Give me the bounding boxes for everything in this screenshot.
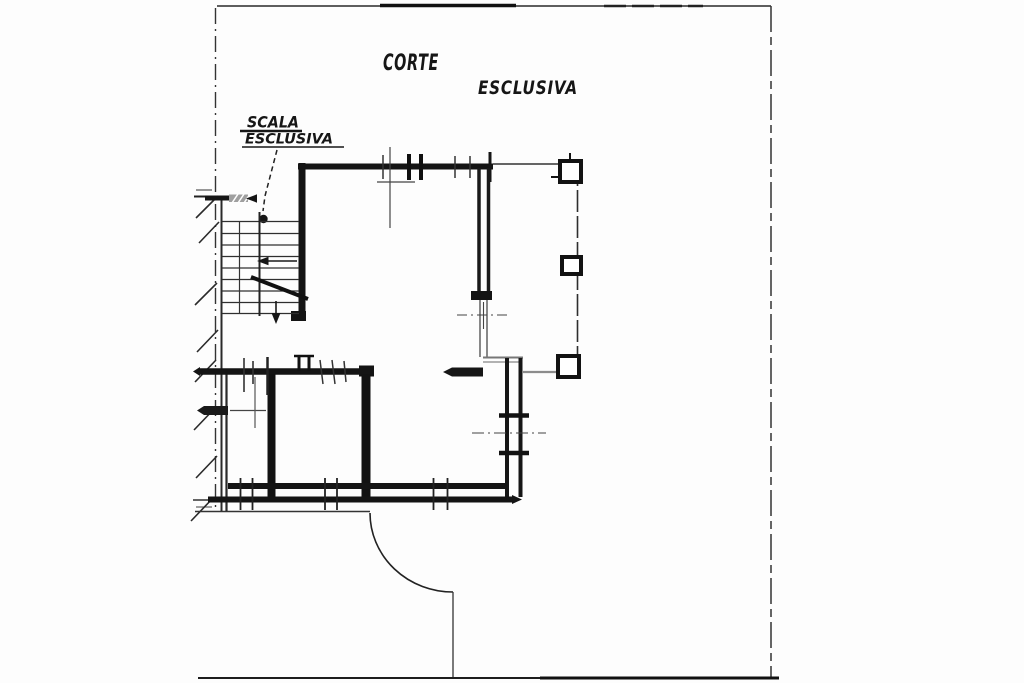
- terrace-pillar-middle: [562, 257, 581, 274]
- courtyard-boundary: [370, 513, 453, 677]
- label-corte: CORTE: [383, 51, 439, 76]
- label-scala: SCALA: [247, 113, 299, 132]
- label-scala-esclusiva: ESCLUSIVA: [245, 132, 333, 148]
- building-north-wall: [298, 147, 493, 228]
- leader-line: [259, 150, 277, 223]
- sheet-border-top: [217, 6, 771, 7]
- building-east-wall-lower: [472, 358, 546, 497]
- floor-plan-sheet: CORTE ESCLUSIVA SCALA ESCLUSIVA: [0, 0, 1024, 683]
- staircase: [205, 163, 308, 324]
- property-boundary-line: [193, 8, 227, 512]
- terrace-pillar-top: [551, 153, 581, 182]
- floor-plan-drawing: CORTE ESCLUSIVA SCALA ESCLUSIVA: [0, 0, 1024, 683]
- label-scala-group: SCALA ESCLUSIVA: [240, 113, 344, 148]
- door-swing-arc: [370, 513, 453, 592]
- building-east-wall-jog: [443, 358, 558, 377]
- lower-block-walls: [193, 366, 522, 512]
- label-corte-esclusiva: ESCLUSIVA: [478, 77, 578, 99]
- building-east-wall-upper: [457, 168, 507, 357]
- terrace-colonnade: [493, 153, 581, 377]
- terrace-pillar-bottom: [558, 356, 579, 377]
